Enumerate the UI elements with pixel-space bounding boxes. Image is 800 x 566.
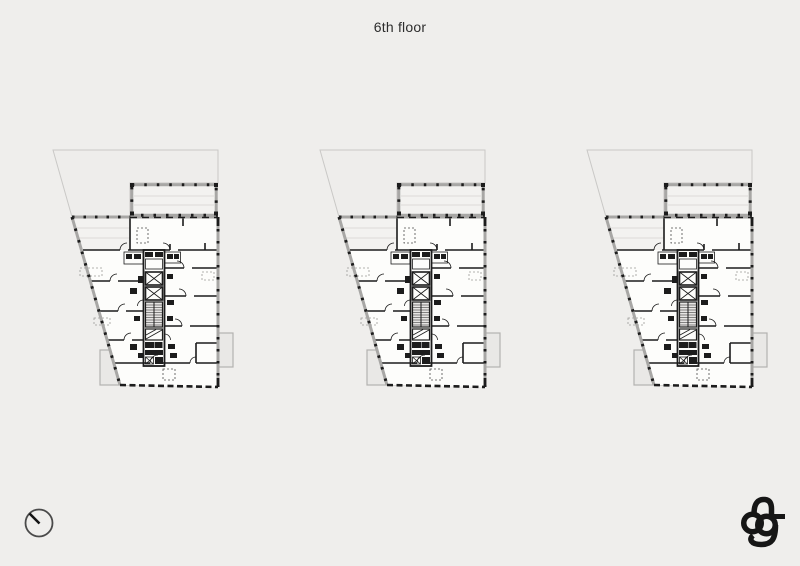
floor-plan-right [587,150,767,387]
architects-ag-monogram-logo-icon [739,495,787,551]
floor-plan-center [320,150,500,387]
floor-plan-left [53,150,233,387]
north-arrow-icon [22,506,56,540]
floor-plans-canvas [0,0,800,566]
presentation-sheet: { "page": { "title": "6th floor" }, "the… [0,0,800,566]
